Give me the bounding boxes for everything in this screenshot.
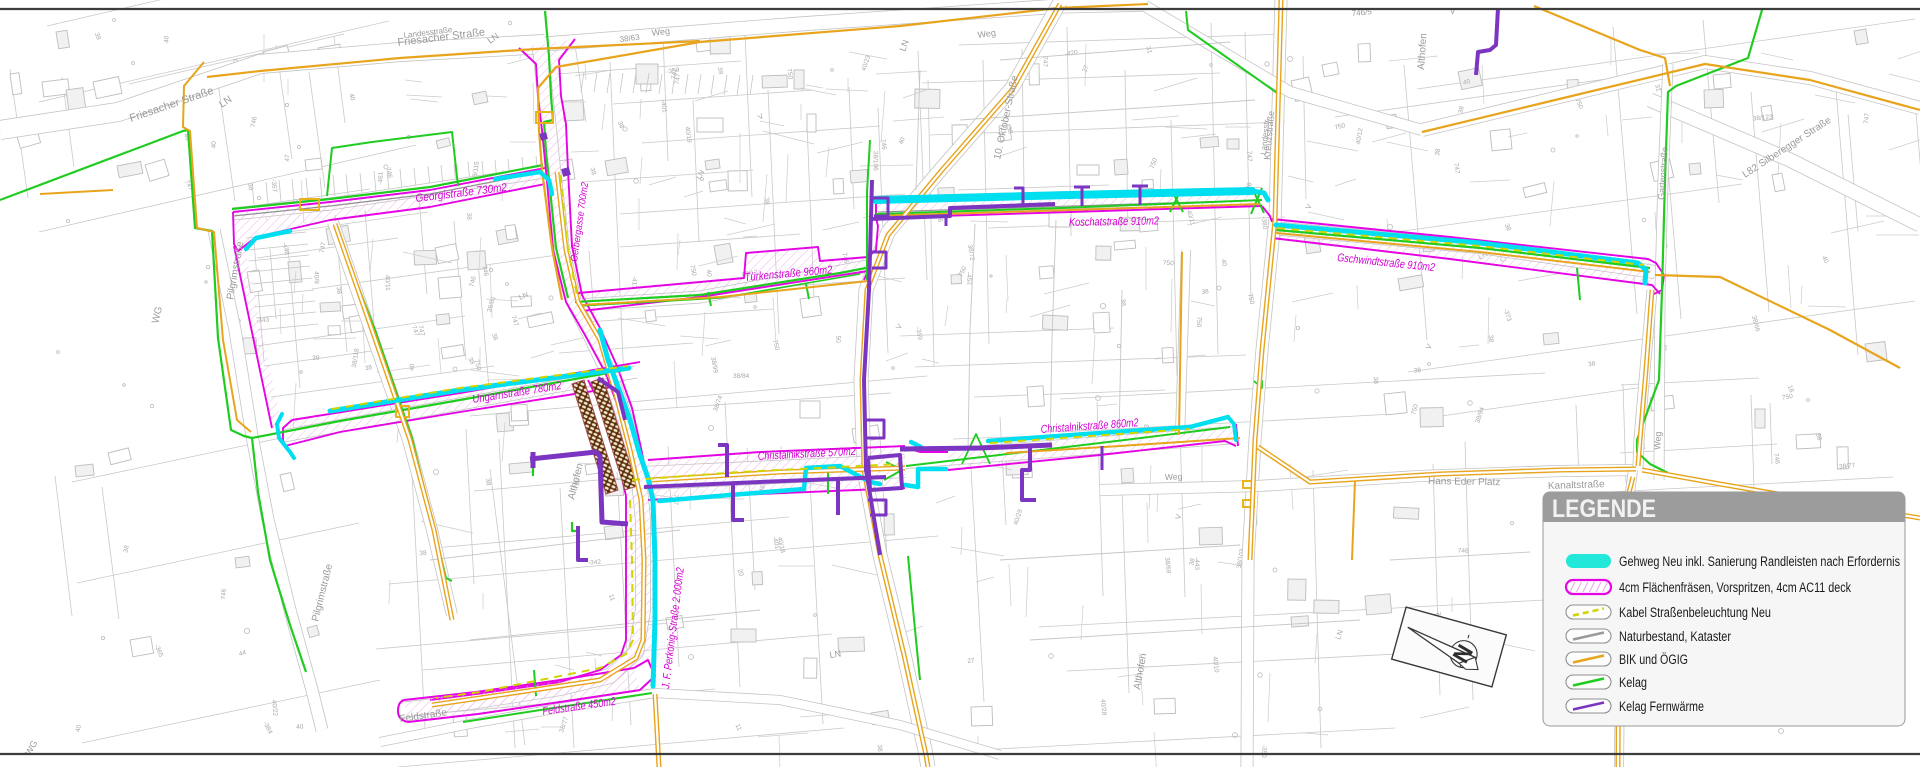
svg-text:40: 40 xyxy=(75,724,83,733)
svg-text:40: 40 xyxy=(210,141,217,149)
svg-text:Kelag Fernwärme: Kelag Fernwärme xyxy=(1619,699,1704,714)
svg-text:-357: -357 xyxy=(270,179,278,193)
svg-text:Naturbestand, Kataster: Naturbestand, Kataster xyxy=(1619,629,1731,644)
svg-text:40/22: 40/22 xyxy=(270,700,278,717)
svg-text:747: 747 xyxy=(1863,112,1871,124)
svg-text:38: 38 xyxy=(1201,288,1209,296)
svg-text:Kelag: Kelag xyxy=(1619,675,1647,690)
svg-text:38: 38 xyxy=(335,286,343,295)
svg-text:38: 38 xyxy=(1588,360,1597,368)
svg-text:746: 746 xyxy=(220,588,227,599)
svg-text:38: 38 xyxy=(1372,377,1379,385)
svg-text:-342: -342 xyxy=(588,559,602,567)
svg-text:Weg: Weg xyxy=(1652,431,1663,450)
svg-text:4cm Flächenfräsen, Vorspritzen: 4cm Flächenfräsen, Vorspritzen, 4cm AC11… xyxy=(1619,580,1851,595)
svg-text:Gehweg Neu inkl. Sanierung Ran: Gehweg Neu inkl. Sanierung Randleisten n… xyxy=(1619,554,1900,569)
svg-text:Kabel Straßenbeleuchtung Neu: Kabel Straßenbeleuchtung Neu xyxy=(1619,605,1771,620)
svg-text:-350: -350 xyxy=(1260,745,1267,758)
svg-text:750: 750 xyxy=(1195,316,1202,327)
svg-text:38: 38 xyxy=(1413,367,1421,375)
svg-text:47: 47 xyxy=(284,154,291,162)
svg-text:38/106: 38/106 xyxy=(872,151,879,171)
svg-text:38: 38 xyxy=(484,478,492,486)
svg-text:38/84: 38/84 xyxy=(733,373,750,380)
svg-text:750: 750 xyxy=(785,68,793,80)
svg-text:747: 747 xyxy=(1245,151,1253,163)
svg-text:-461: -461 xyxy=(378,171,385,184)
svg-text:746: 746 xyxy=(1458,548,1469,555)
svg-text:-452: -452 xyxy=(965,272,973,286)
svg-text:40: 40 xyxy=(705,269,713,277)
svg-text:38: 38 xyxy=(876,744,884,752)
svg-text:39: 39 xyxy=(312,355,320,362)
svg-text:50: 50 xyxy=(834,335,841,343)
svg-text:Kanaltstraße: Kanaltstraße xyxy=(1548,479,1605,492)
svg-text:40/9: 40/9 xyxy=(312,271,319,284)
svg-text:750: 750 xyxy=(1163,259,1175,267)
svg-text:Weg: Weg xyxy=(1165,471,1183,482)
svg-text:38: 38 xyxy=(465,213,472,221)
svg-text:LEGENDE: LEGENDE xyxy=(1552,495,1656,523)
svg-text:38: 38 xyxy=(1119,298,1127,306)
svg-text:40/11: 40/11 xyxy=(384,275,391,291)
svg-text:27: 27 xyxy=(967,657,976,665)
svg-text:Koschatstraße 910m2: Koschatstraße 910m2 xyxy=(1069,215,1160,229)
svg-text:38: 38 xyxy=(419,550,427,558)
svg-text:LN: LN xyxy=(829,648,842,660)
svg-text:Hans Eder Platz: Hans Eder Platz xyxy=(1428,476,1500,488)
svg-text:40: 40 xyxy=(296,723,304,731)
svg-text:38: 38 xyxy=(763,197,771,205)
svg-text:40: 40 xyxy=(163,35,170,43)
svg-text:747: 747 xyxy=(1041,56,1048,67)
svg-text:BIK und ÖGIG: BIK und ÖGIG xyxy=(1619,652,1688,667)
